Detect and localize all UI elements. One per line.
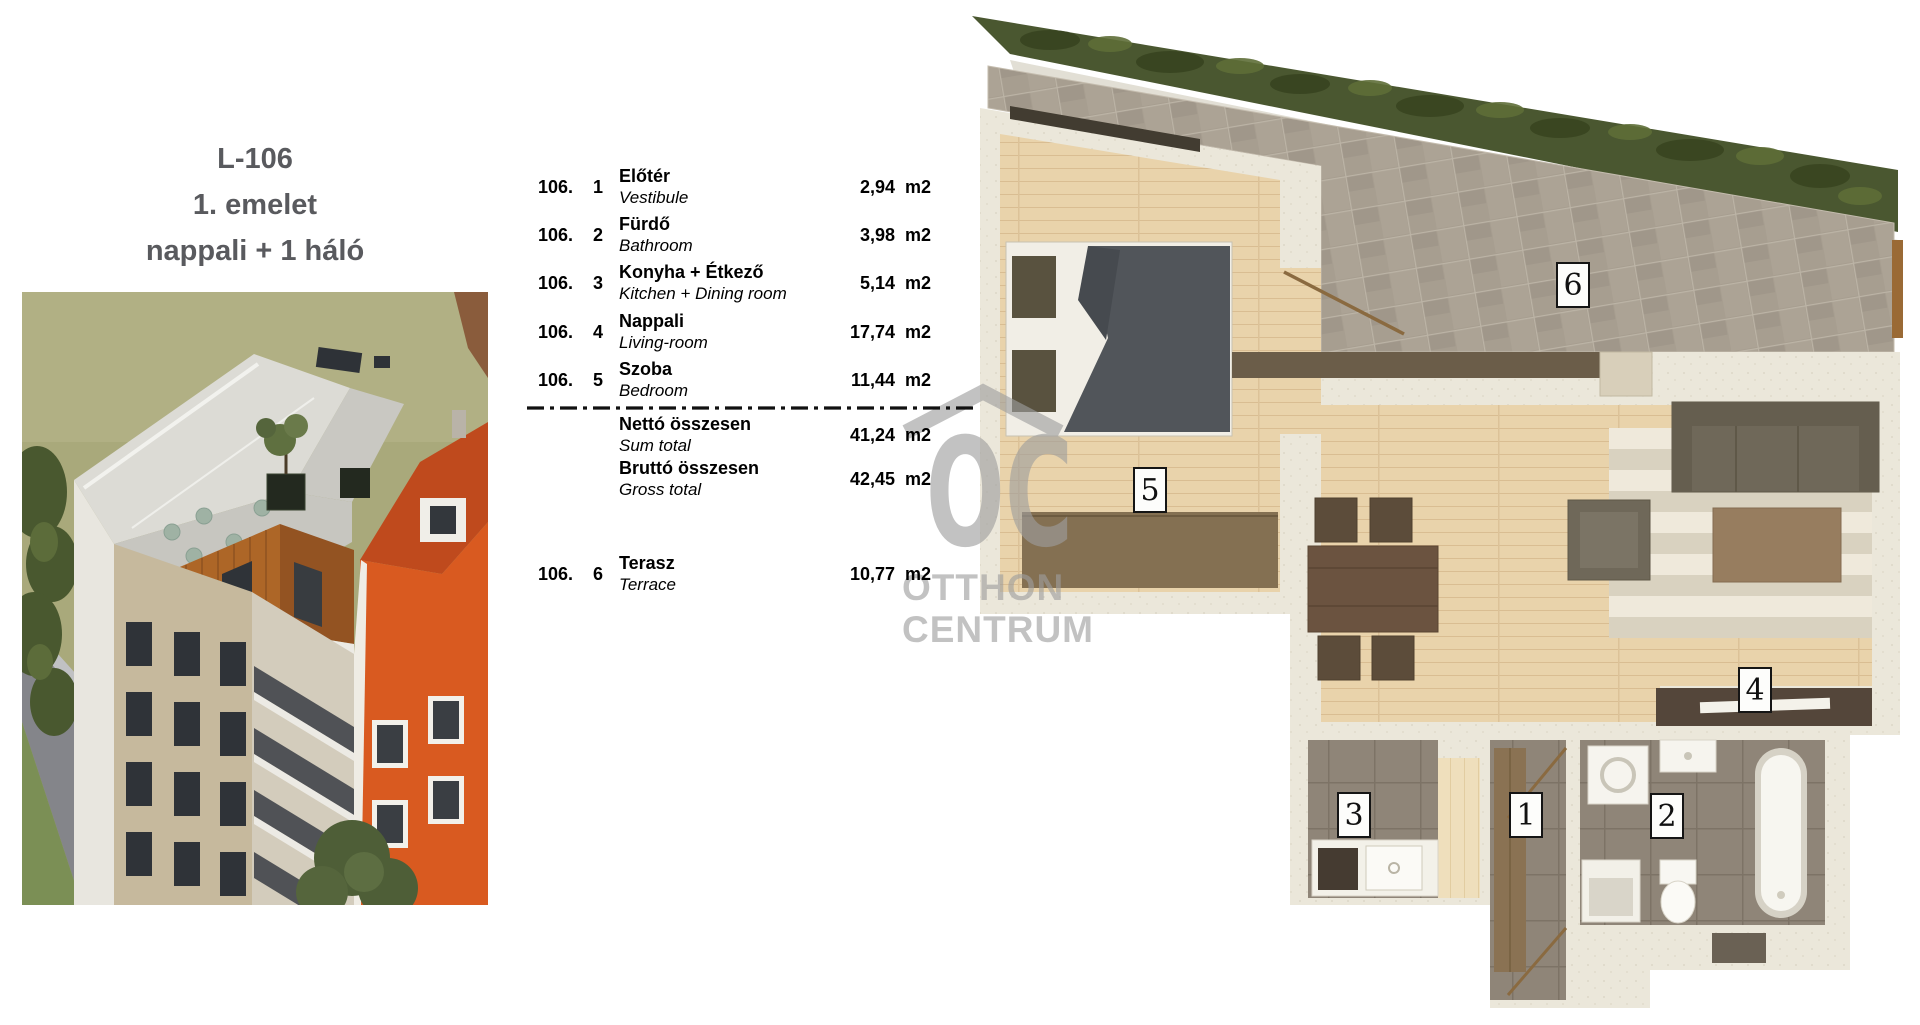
room-area: 2,94 (805, 177, 895, 198)
stove (1318, 848, 1358, 890)
table-row: 106. 5 Szoba Bedroom 11,44 m2 (527, 359, 997, 407)
table-row: 106. 4 Nappali Living-room 17,74 m2 (527, 311, 997, 359)
room-number: 3 (587, 273, 609, 294)
room-name-en: Kitchen + Dining room (619, 284, 787, 304)
room-name-hu: Előtér (619, 166, 670, 187)
apartment-number: 106. (527, 564, 573, 585)
table-row: 106. 2 Fürdő Bathroom 3,98 m2 (527, 214, 997, 262)
title-block: L-106 1. emelet nappali + 1 háló (22, 136, 488, 274)
brochure-page: L-106 1. emelet nappali + 1 háló (0, 0, 1920, 1025)
terrace-sill (1232, 352, 1600, 378)
apartment-number: 106. (527, 225, 573, 246)
room-area: 3,98 (805, 225, 895, 246)
total-label-en: Gross total (619, 480, 701, 500)
bedroom-doorway (1280, 268, 1321, 434)
bathtub (1755, 748, 1807, 918)
toilet (1660, 860, 1696, 923)
apartment-number: 106. (527, 370, 573, 391)
building-photo (22, 292, 488, 905)
room-number: 2 (587, 225, 609, 246)
area-unit: m2 (905, 225, 931, 246)
room-name-en: Bedroom (619, 381, 688, 401)
room-number: 4 (587, 322, 609, 343)
room-number: 1 (587, 177, 609, 198)
total-label-hu: Bruttó összesen (619, 458, 759, 479)
area-unit: m2 (905, 322, 931, 343)
room-area: 5,14 (805, 273, 895, 294)
terrace-trim (1892, 240, 1903, 338)
area-unit: m2 (905, 273, 931, 294)
room-name-en: Living-room (619, 333, 708, 353)
total-label-en: Sum total (619, 436, 691, 456)
shower (1582, 860, 1640, 922)
apartment-code: L-106 (22, 136, 488, 182)
layout-label: nappali + 1 háló (22, 228, 488, 274)
room-name-hu: Szoba (619, 359, 672, 380)
floor-label: 1. emelet (22, 182, 488, 228)
washing-machine (1588, 746, 1648, 804)
table-row: 106. 1 Előtér Vestibule 2,94 m2 (527, 166, 997, 214)
kitchen (1308, 740, 1480, 898)
room-name-hu: Terasz (619, 553, 675, 574)
total-area: 41,24 (805, 425, 895, 446)
tv-sideboard (1656, 688, 1872, 726)
photo-brick-facade (114, 544, 252, 905)
area-unit: m2 (905, 469, 931, 490)
floor-plan (960, 0, 1920, 1025)
total-label-hu: Nettó összesen (619, 414, 751, 435)
apartment-number: 106. (527, 322, 573, 343)
apartment-number: 106. (527, 273, 573, 294)
room-area: 10,77 (805, 564, 895, 585)
room-name-en: Bathroom (619, 236, 693, 256)
room-area: 11,44 (805, 370, 895, 391)
coffee-table (1713, 508, 1841, 582)
area-unit: m2 (905, 425, 931, 446)
entry (1490, 740, 1566, 1000)
room-name-hu: Konyha + Étkező (619, 262, 764, 283)
area-table: 106. 1 Előtér Vestibule 2,94 m2 106. 2 F… (527, 0, 997, 700)
total-area: 42,45 (805, 469, 895, 490)
table-total-row: Bruttó összesen Gross total 42,45 m2 (527, 458, 997, 506)
bath-mat (1712, 933, 1766, 963)
apartment-number: 106. (527, 177, 573, 198)
table-total-row: Nettó összesen Sum total 41,24 m2 (527, 414, 997, 462)
area-unit: m2 (905, 564, 931, 585)
kitchen-sink (1366, 846, 1422, 890)
table-row-terrace: 106. 6 Terasz Terrace 10,77 m2 (527, 553, 997, 601)
room-name-en: Terrace (619, 575, 676, 595)
room-number: 6 (587, 564, 609, 585)
area-unit: m2 (905, 177, 931, 198)
room-name-hu: Nappali (619, 311, 684, 332)
area-unit: m2 (905, 370, 931, 391)
armchair (1568, 500, 1650, 580)
room-name-en: Vestibule (619, 188, 688, 208)
terrace-bench (1600, 352, 1652, 396)
table-row: 106. 3 Konyha + Étkező Kitchen + Dining … (527, 262, 997, 310)
room-area: 17,74 (805, 322, 895, 343)
room-number: 5 (587, 370, 609, 391)
wardrobe (1022, 512, 1278, 588)
sofa (1672, 402, 1879, 492)
room-name-hu: Fürdő (619, 214, 670, 235)
dash-dot-divider (527, 404, 979, 412)
bed (1006, 242, 1232, 436)
